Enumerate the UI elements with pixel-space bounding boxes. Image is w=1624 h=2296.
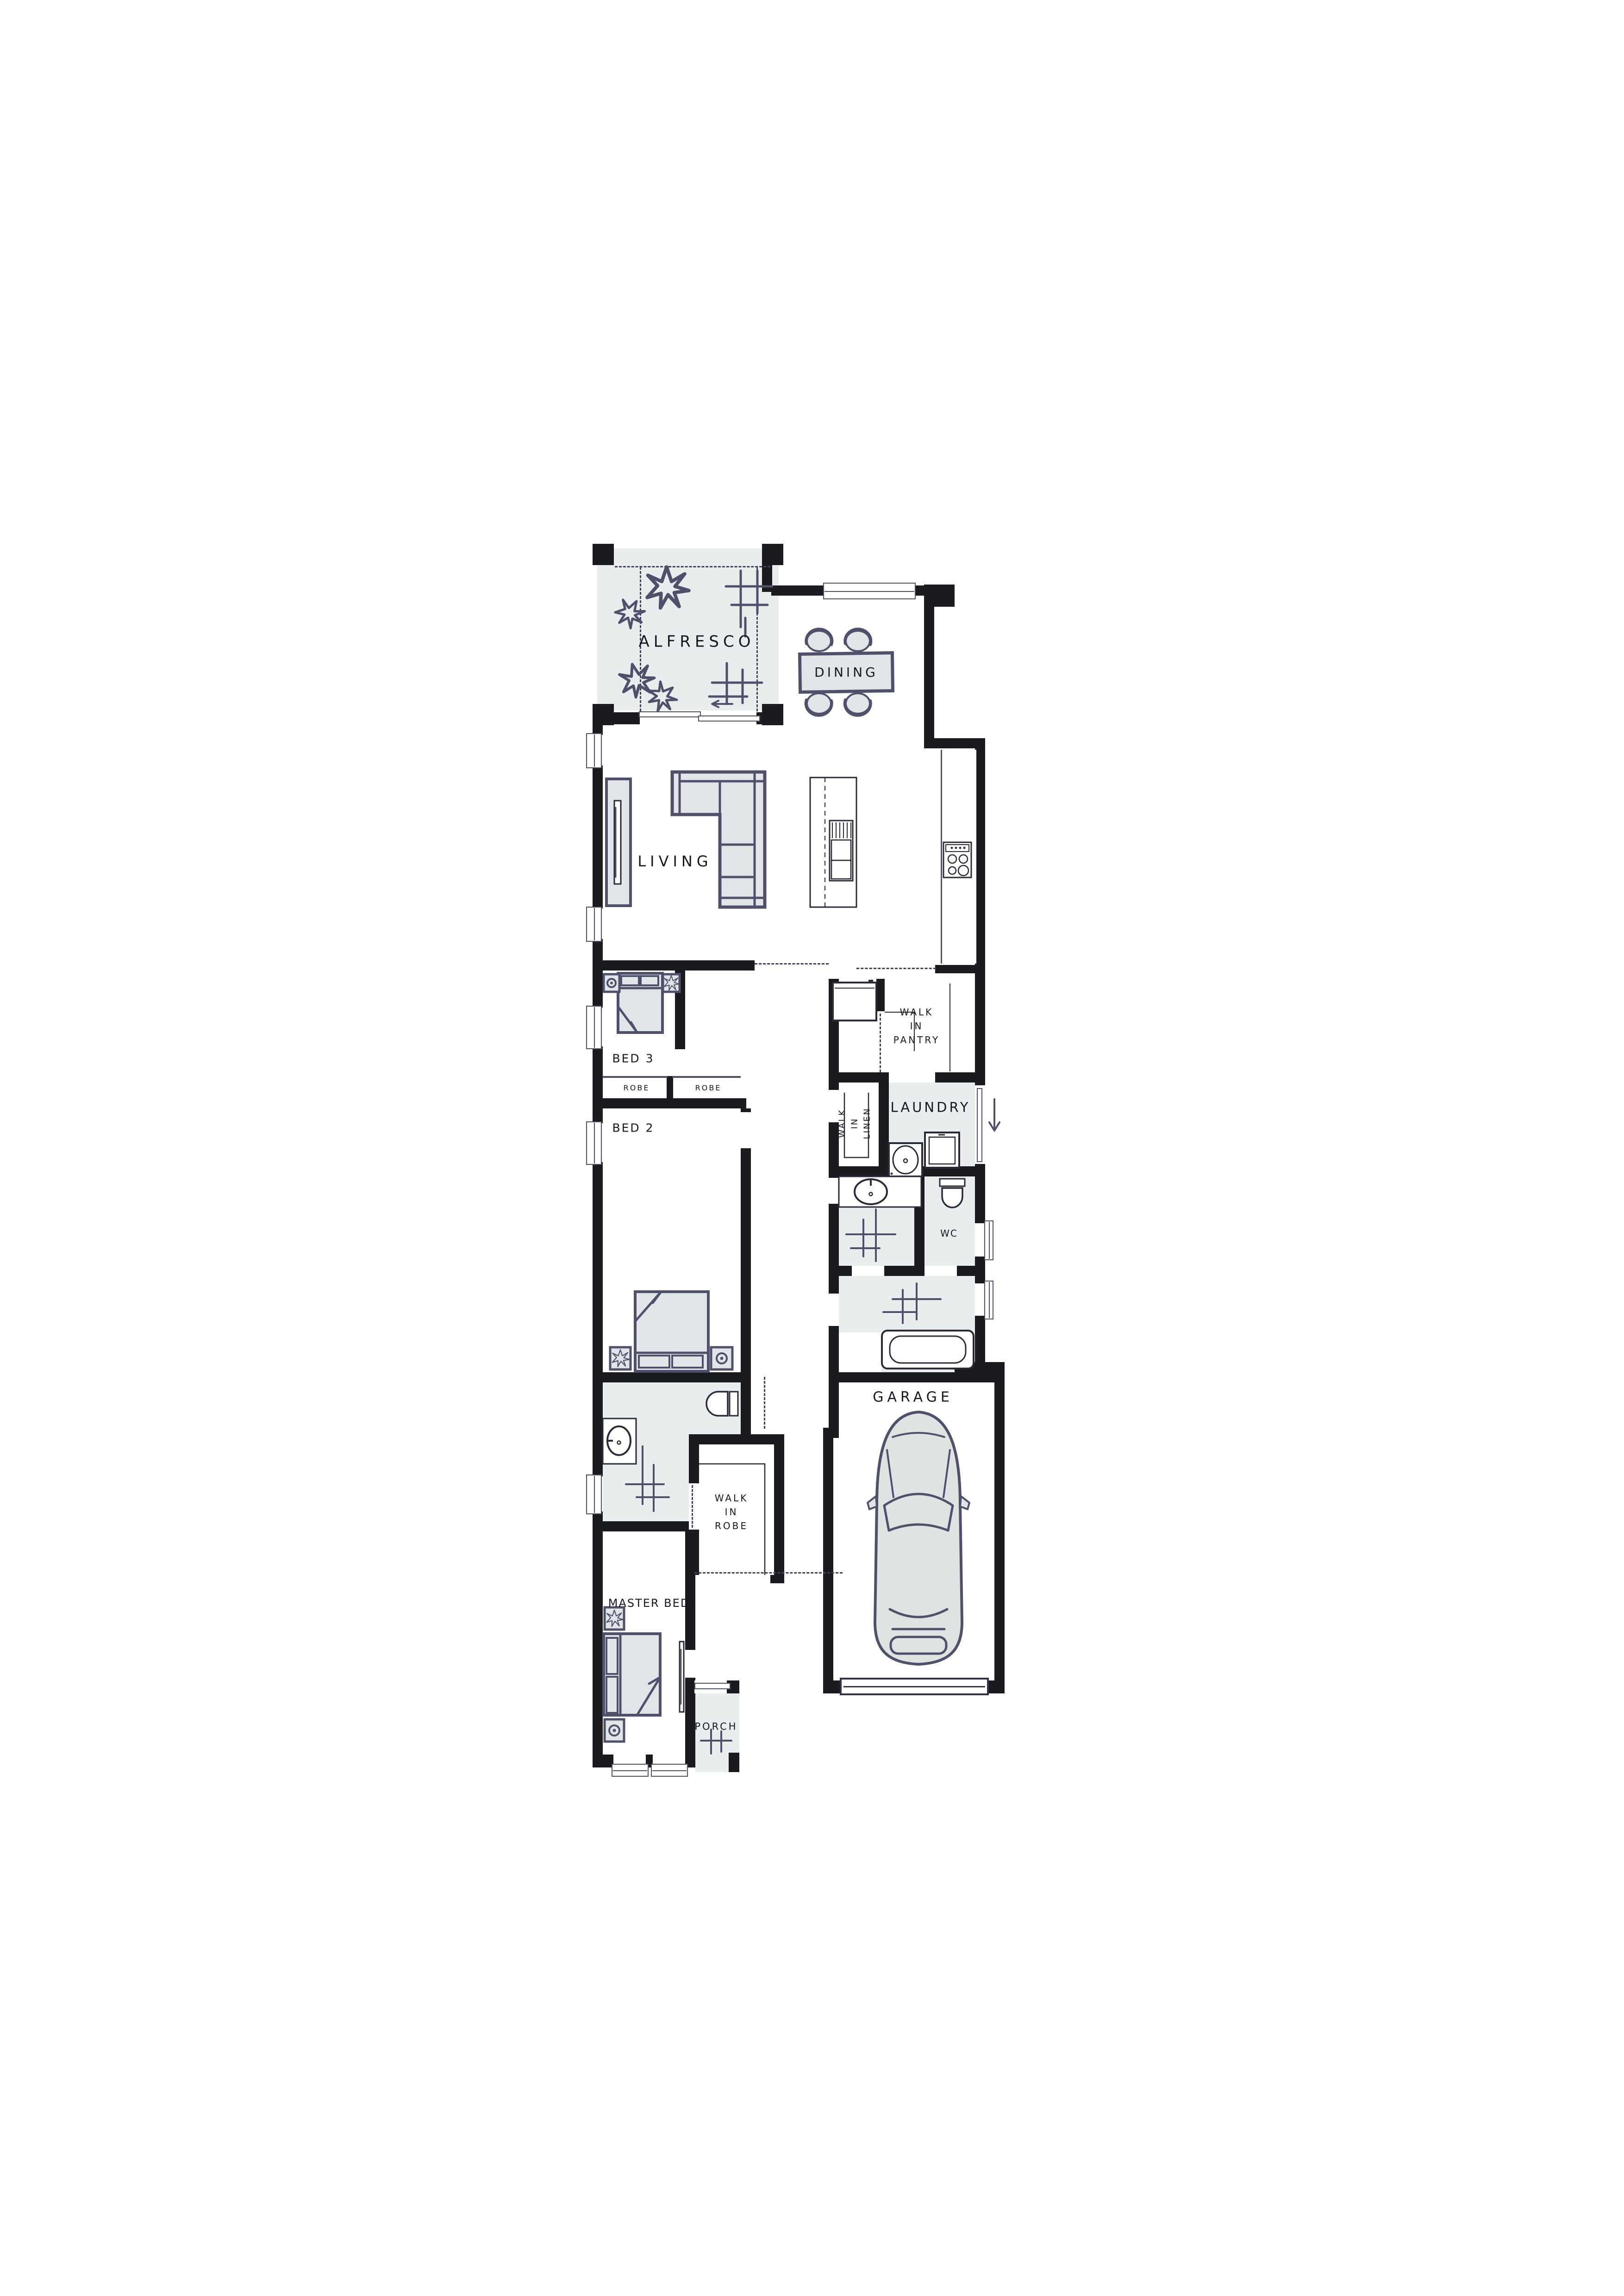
porch-label: PORCH: [694, 1719, 737, 1734]
vanity-basin-icon: [839, 1176, 921, 1207]
car-icon: [868, 1412, 969, 1664]
walk-in-robe-label: WALK IN ROBE: [715, 1491, 749, 1533]
furniture-layer: [593, 544, 1009, 1780]
sofa-icon: [672, 772, 765, 907]
laundry-label: LAUNDRY: [891, 1097, 971, 1118]
bed3-side-table-lamp-icon: [604, 974, 619, 992]
bed2-label: BED 2: [612, 1119, 654, 1137]
bed2-side-table-lamp-icon: [711, 1347, 732, 1369]
master-tv-panel-icon: [680, 1642, 684, 1712]
garage-label: GARAGE: [873, 1387, 953, 1408]
fridge-icon: [833, 980, 876, 1020]
laundry-trough-icon: [889, 1143, 922, 1176]
master-bed-icon: [604, 1634, 660, 1715]
wc-label: WC: [940, 1226, 958, 1240]
walk-in-pantry-label: WALK IN PANTRY: [893, 1005, 940, 1047]
living-label: LIVING: [637, 850, 712, 872]
cooktop-icon: [943, 842, 971, 877]
tv-unit-icon: [606, 779, 631, 906]
floor-waste-icon: [883, 1283, 941, 1323]
alfresco-label: ALFRESCO: [639, 630, 755, 654]
sink-icon: [830, 821, 853, 881]
ensuite-vanity-icon: [603, 1419, 636, 1464]
ensuite-toilet-icon: [706, 1392, 738, 1416]
shower-waste-icon: [846, 1209, 895, 1261]
floor-plan: ALFRESCO DINING LIVING WALK IN PANTRY LA…: [593, 544, 1009, 1780]
dining-label: DINING: [814, 663, 878, 682]
bed2-side-table-plant-icon: [610, 1347, 631, 1369]
bathtub-icon: [882, 1331, 974, 1369]
toilet-icon: [940, 1179, 965, 1207]
floor-plan-page: ALFRESCO DINING LIVING WALK IN PANTRY LA…: [0, 0, 1624, 2296]
master-side-table-lamp-icon: [605, 1719, 624, 1742]
bed3-icon: [618, 973, 662, 1033]
washing-machine-icon: [925, 1132, 959, 1168]
bed3-label: BED 3: [612, 1050, 654, 1067]
laundry-exit-arrow-icon: [989, 1099, 999, 1131]
bed2-icon: [635, 1292, 708, 1371]
bed3-side-table-plant-icon: [663, 974, 680, 992]
master-bed-label: MASTER BED: [608, 1595, 690, 1612]
walk-in-linen-label: WALK IN LINEN: [836, 1108, 874, 1139]
robe-right-label: ROBE: [695, 1083, 722, 1094]
robe-left-label: ROBE: [624, 1083, 650, 1094]
alfresco-arrow-icon: [712, 701, 732, 707]
